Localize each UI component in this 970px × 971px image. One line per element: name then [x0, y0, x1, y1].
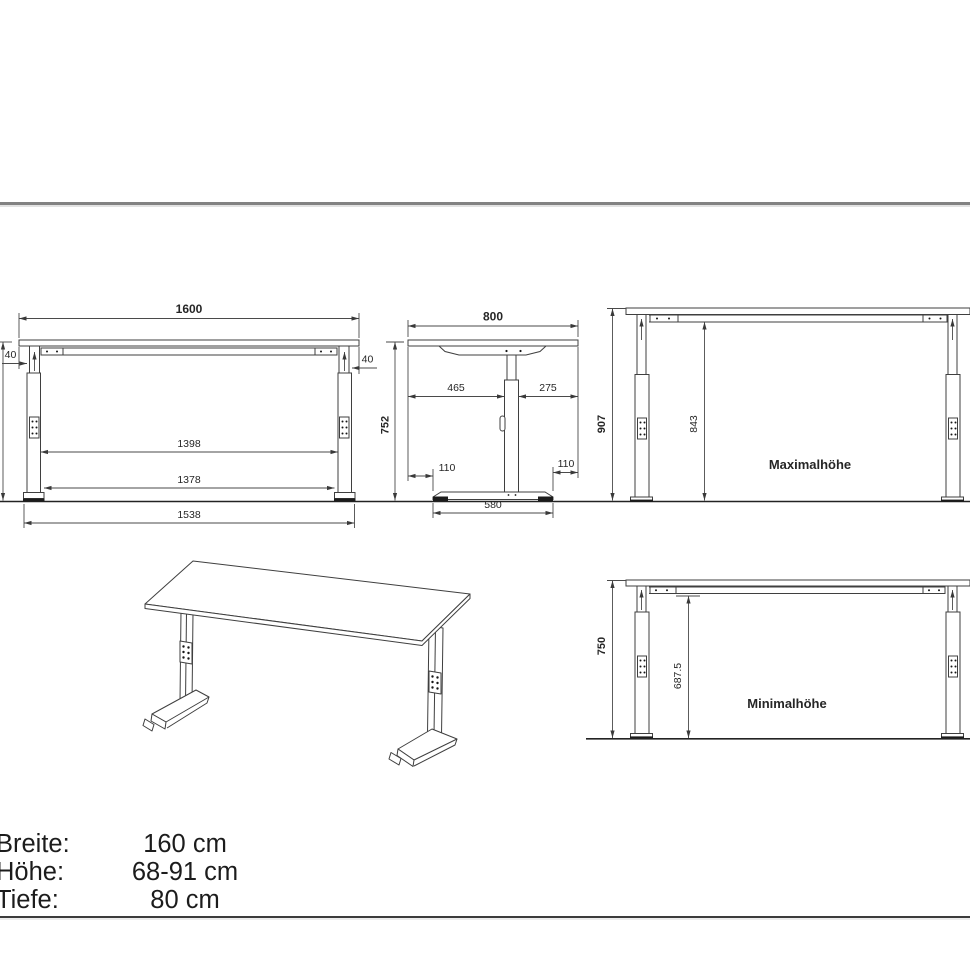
dim-front-of-column: 465 [447, 382, 465, 394]
dim-back-of-column: 275 [539, 382, 557, 394]
dim-overhang-front: 110 [439, 462, 456, 474]
dim-overhang-left: 40 [5, 349, 17, 361]
dim-depth: 800 [483, 310, 503, 324]
min-height-view: 750 687.5 Minimalhöhe [586, 580, 970, 739]
adjustment-lever [500, 416, 505, 431]
spec-table: Breite: 160 cm Höhe: 68-91 cm Tiefe: 80 … [0, 830, 420, 914]
max-height-view: 907 843 Maximalhöhe [596, 308, 970, 502]
dim-max-clearance: 843 [688, 415, 700, 433]
dim-max-height: 907 [596, 415, 608, 433]
dim-foot-depth: 580 [484, 499, 502, 511]
front-elevation-view: 1600 [0, 302, 404, 528]
spec-row-tiefe: Tiefe: 80 cm [0, 886, 420, 914]
technical-drawing-page: 1600 [0, 0, 970, 971]
dim-front-width: 1600 [176, 302, 203, 316]
dim-overhang-back: 110 [558, 458, 575, 470]
side-elevation-view: 800 465 275 110 110 [408, 310, 578, 519]
perspective-view [143, 561, 470, 767]
dim-min-clearance: 687.5 [672, 663, 684, 689]
technical-drawing-canvas: 1600 [0, 0, 970, 971]
dim-frame-inner: 1398 [177, 438, 201, 450]
max-height-label: Maximalhöhe [769, 457, 851, 472]
spec-row-hoehe: Höhe: 68-91 cm [0, 858, 420, 886]
min-height-label: Minimalhöhe [747, 696, 826, 711]
dim-front-height: 752 [380, 416, 392, 434]
spec-row-breite: Breite: 160 cm [0, 830, 420, 858]
dim-min-height: 750 [596, 637, 608, 655]
dim-foot-span: 1538 [177, 509, 201, 521]
bottom-divider [0, 916, 970, 920]
spec-value: 80 cm [30, 886, 340, 914]
dim-overhang-right: 40 [362, 354, 374, 366]
spec-value: 160 cm [30, 830, 340, 858]
spec-value: 68-91 cm [30, 858, 340, 886]
dim-leg-inner: 1378 [177, 474, 201, 486]
